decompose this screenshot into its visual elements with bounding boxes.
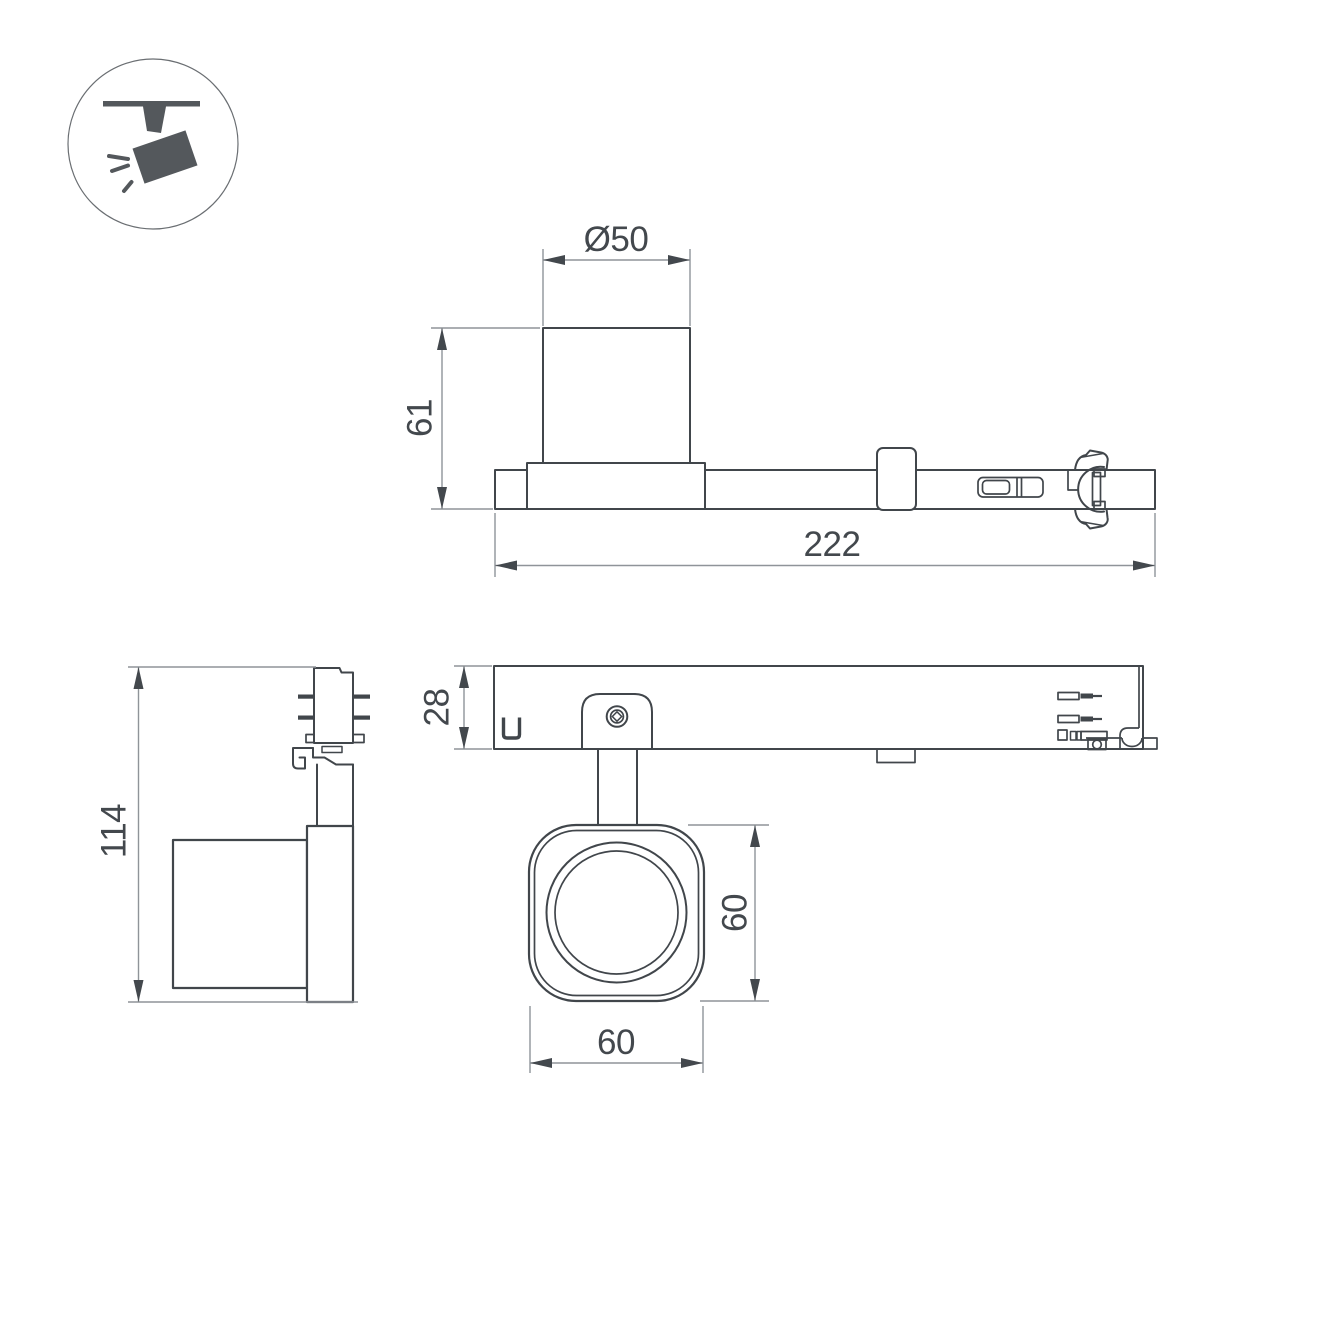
pin-contact [1081,694,1094,699]
front-view: 28 60 60 [418,666,1158,1073]
arrowhead [530,1058,552,1068]
arrowhead [668,255,690,265]
arrowhead [681,1058,703,1068]
arrowhead [437,328,447,350]
arrowhead [437,487,447,509]
head-cylinder-top-view [543,328,690,463]
side-view: 114 [95,667,371,1002]
dim-label-total-height: 114 [95,804,134,858]
arrowhead [459,727,469,749]
pin-contact [1081,717,1094,722]
arrowhead [459,666,469,688]
end-foot [1143,738,1157,749]
arrowhead [750,979,760,1001]
arrowhead [495,561,517,571]
ceiling-bar-icon [103,101,200,107]
mount-block [877,448,916,510]
bracket-step [313,748,353,765]
head-bezel-side-view [307,826,353,1002]
head-body-side-view [173,840,307,988]
locking-hook [293,748,313,769]
arrowhead [750,825,760,847]
pin [353,716,370,720]
pin [298,716,314,720]
dimension-total-length: 222 [495,513,1155,577]
dim-label-total-length: 222 [804,525,861,564]
dim-label-head-height: 61 [401,399,440,437]
track-adapter [314,668,353,743]
product-pictogram [68,59,238,229]
dimension-face-width: 60 [530,1006,703,1073]
dim-label-head-diameter: Ø50 [584,220,649,259]
adapter-base-top-view [527,463,705,509]
mount-block-tab [877,749,915,763]
pin [353,695,370,699]
dimension-drawing-canvas: Ø50 61 222 [0,0,1331,1331]
dimension-head-diameter: Ø50 [543,220,690,326]
adapter-clip-tab [322,747,342,753]
arrowhead [1133,561,1155,571]
arrowhead [134,980,144,1002]
top-view: Ø50 61 222 [401,220,1156,577]
arrowhead [543,255,565,265]
dim-label-face-width: 60 [597,1023,635,1062]
pin [298,695,314,699]
dimension-rail-height: 28 [418,666,493,749]
dim-label-rail-height: 28 [418,689,457,727]
dim-label-face-height: 60 [716,894,755,932]
technical-drawing-page: Ø50 61 222 [0,0,1331,1331]
arrowhead [134,667,144,689]
